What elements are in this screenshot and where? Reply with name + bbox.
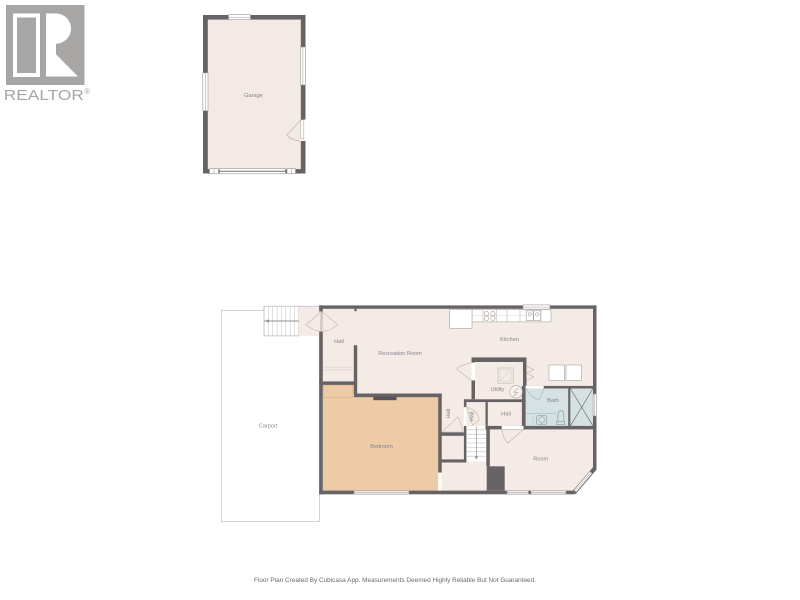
svg-text:Kitchen: Kitchen: [500, 337, 519, 343]
svg-text:Room: Room: [533, 457, 548, 463]
svg-text:Bedroom: Bedroom: [370, 444, 393, 450]
svg-text:Garage: Garage: [244, 93, 263, 99]
svg-text:Bath: Bath: [547, 398, 559, 404]
svg-text:Hall: Hall: [501, 412, 511, 418]
svg-text:Recreation Room: Recreation Room: [378, 351, 422, 357]
svg-text:®: ®: [84, 87, 90, 96]
svg-text:REALTOR: REALTOR: [4, 87, 84, 104]
svg-text:Floor Plan Created By Cubicasa: Floor Plan Created By Cubicasa App. Meas…: [254, 577, 536, 584]
svg-text:Utility: Utility: [491, 387, 505, 393]
svg-text:Hall: Hall: [334, 339, 344, 345]
svg-text:Carport: Carport: [259, 424, 278, 430]
svg-text:Hall: Hall: [470, 412, 476, 422]
svg-text:Hall: Hall: [446, 409, 452, 419]
